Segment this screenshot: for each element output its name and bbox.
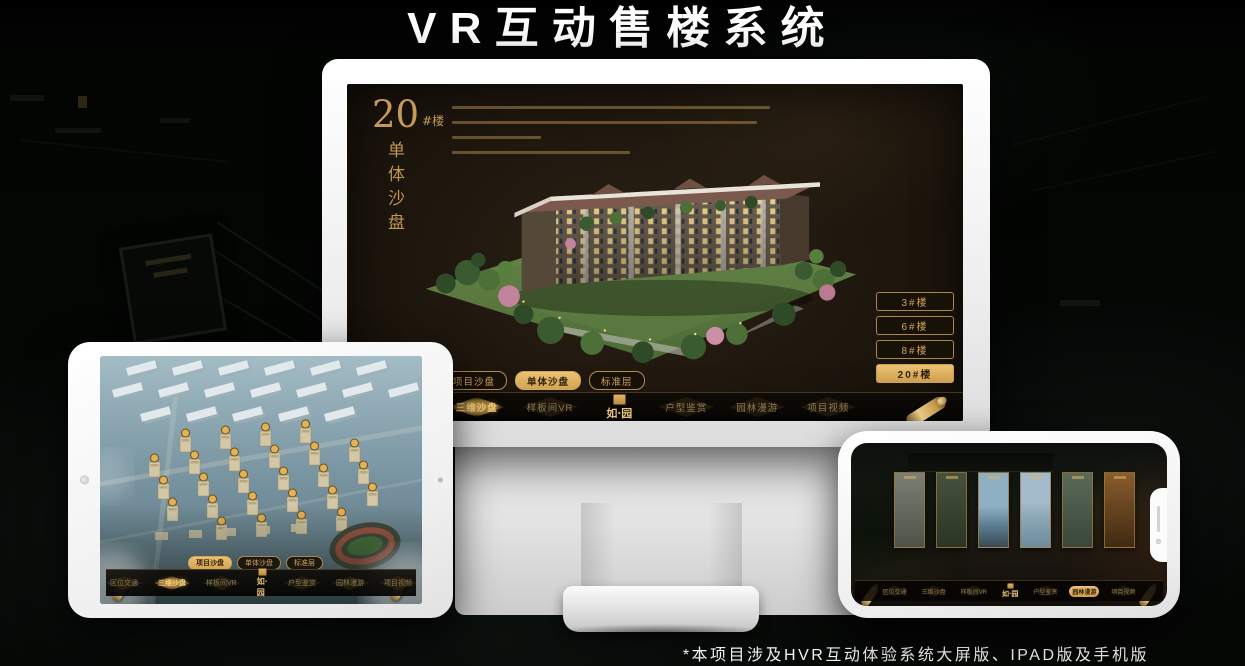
floor-button[interactable]: 3#楼 xyxy=(876,292,954,311)
floor-button-group: 3#楼6#楼8#楼20#楼 xyxy=(876,292,954,383)
scene-panel[interactable] xyxy=(894,472,925,548)
scene-panel[interactable] xyxy=(978,472,1009,548)
sandbox-subtabs: 项目沙盘单体沙盘标准层 xyxy=(441,371,645,390)
building-number: 20 xyxy=(372,96,419,133)
nav-item[interactable]: 项目视频 xyxy=(1108,586,1138,597)
headline-subtitle: 单体沙盘 xyxy=(382,141,407,237)
scroll-icon[interactable] xyxy=(904,394,948,421)
nav-item[interactable]: 园林漫游 xyxy=(732,400,782,414)
nav-item[interactable]: 区位交通 xyxy=(106,578,142,588)
seal-icon xyxy=(613,394,626,405)
building-number-unit: #楼 xyxy=(422,112,444,133)
sensor-dot-icon xyxy=(438,478,443,483)
nav-item[interactable]: 区位交通 xyxy=(880,586,910,597)
background-picture-frame xyxy=(119,233,227,344)
nav-item[interactable]: 样板间VR xyxy=(523,400,578,414)
subtab[interactable]: 标准层 xyxy=(589,371,645,390)
nav-item[interactable]: 三维沙盘 xyxy=(154,578,190,588)
scene-panel[interactable] xyxy=(1020,472,1051,548)
phone-device: 区位交通三维沙盘样板间VR 如·园 户型鉴赏园林漫游项目视频 xyxy=(838,431,1180,618)
nav-item[interactable]: 项目视频 xyxy=(803,400,853,414)
floor-button[interactable]: 8#楼 xyxy=(876,340,954,359)
nav-item[interactable]: 样板间VR xyxy=(202,578,241,588)
subtab[interactable]: 项目沙盘 xyxy=(188,556,232,570)
brand-logo: 如·园 xyxy=(606,394,632,421)
page-title: VR互动售楼系统 xyxy=(0,0,1245,58)
footnote-text: *本项目涉及HVR互动体验系统大屏版、IPAD版及手机版 xyxy=(683,641,1149,665)
brand-logo: 如·园 xyxy=(1002,583,1018,599)
camera-icon xyxy=(80,476,89,485)
floor-button[interactable]: 6#楼 xyxy=(876,316,954,335)
tablet-screen: 项目沙盘单体沙盘标准层 区位交通三维沙盘样板间VR 如·园 户型鉴赏园林漫游项目… xyxy=(100,356,422,604)
camera-icon xyxy=(1156,539,1161,544)
nav-item[interactable]: 户型鉴赏 xyxy=(1030,586,1060,597)
nav-item[interactable]: 三维沙盘 xyxy=(452,400,502,414)
monitor-stand-shadow xyxy=(545,624,777,642)
tablet-navbar: 区位交通三维沙盘样板间VR 如·园 户型鉴赏园林漫游项目视频 xyxy=(106,569,416,596)
scene-panel[interactable] xyxy=(1062,472,1093,548)
nav-item[interactable]: 户型鉴赏 xyxy=(661,400,711,414)
phone-screen: 区位交通三维沙盘样板间VR 如·园 户型鉴赏园林漫游项目视频 xyxy=(851,443,1167,606)
building-render xyxy=(415,130,867,370)
subtab[interactable]: 单体沙盘 xyxy=(515,371,581,390)
scene-panel[interactable] xyxy=(936,472,967,548)
scene-panel[interactable] xyxy=(1104,472,1135,548)
poster-canvas: VR互动售楼系统 20 #楼 单体沙盘 xyxy=(0,0,1245,666)
building-headline: 20 #楼 单体沙盘 xyxy=(372,96,444,237)
gate-beam xyxy=(908,453,1053,472)
speaker-icon xyxy=(1157,506,1160,532)
tablet-subtabs: 项目沙盘单体沙盘标准层 xyxy=(188,556,323,570)
seal-icon xyxy=(258,568,267,576)
tablet-device: 项目沙盘单体沙盘标准层 区位交通三维沙盘样板间VR 如·园 户型鉴赏园林漫游项目… xyxy=(68,342,453,618)
phone-navbar: 区位交通三维沙盘样板间VR 如·园 户型鉴赏园林漫游项目视频 xyxy=(855,580,1163,601)
description-text-lines xyxy=(452,106,770,166)
nav-item[interactable]: 园林漫游 xyxy=(1069,586,1099,597)
nav-item[interactable]: 样板间VR xyxy=(958,586,990,597)
nav-item[interactable]: 园林漫游 xyxy=(332,578,368,588)
subtab[interactable]: 标准层 xyxy=(286,556,323,570)
brand-logo: 如·园 xyxy=(257,568,268,598)
nav-item[interactable]: 户型鉴赏 xyxy=(284,578,320,588)
nav-item[interactable]: 项目视频 xyxy=(380,578,416,588)
phone-notch xyxy=(1150,488,1167,562)
nav-item[interactable]: 三维沙盘 xyxy=(919,586,949,597)
floor-button[interactable]: 20#楼 xyxy=(876,364,954,383)
